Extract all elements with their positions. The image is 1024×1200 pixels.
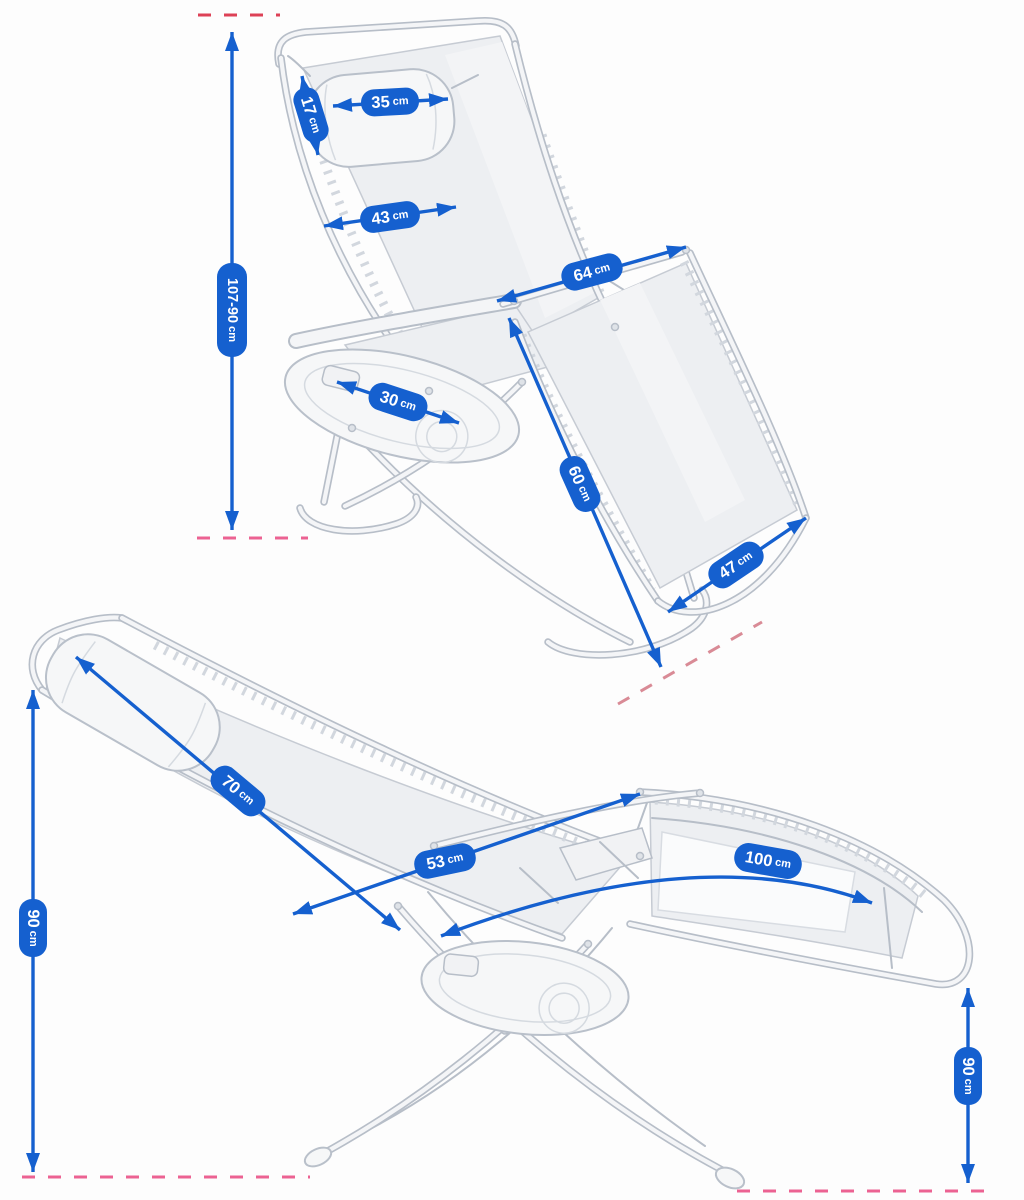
reclined-legrest-frame: [630, 792, 969, 984]
dimension-pill: [19, 899, 47, 957]
dimension-label: 107-90cm: [224, 278, 240, 342]
reference-line-diagonal: [618, 622, 762, 704]
upright-headrest-pillow: [304, 66, 457, 170]
reclined-cup-holder-tray: [417, 931, 633, 1044]
pillow-strap: [288, 56, 310, 76]
dimension-pill: [360, 87, 419, 117]
dimension-pill: [954, 1047, 982, 1105]
reclined-headrest-pillow: [31, 620, 234, 786]
dim-overall-height: 107-90cm: [217, 32, 247, 530]
chair-reclined-view: [31, 618, 969, 1193]
dim-height-right: 90cm: [954, 988, 982, 1183]
product-dimensions-diagram: 107-90cm 17cm 35cm 43cm 64cm: [0, 0, 1024, 1200]
dim-height-left: 90cm: [19, 690, 47, 1172]
